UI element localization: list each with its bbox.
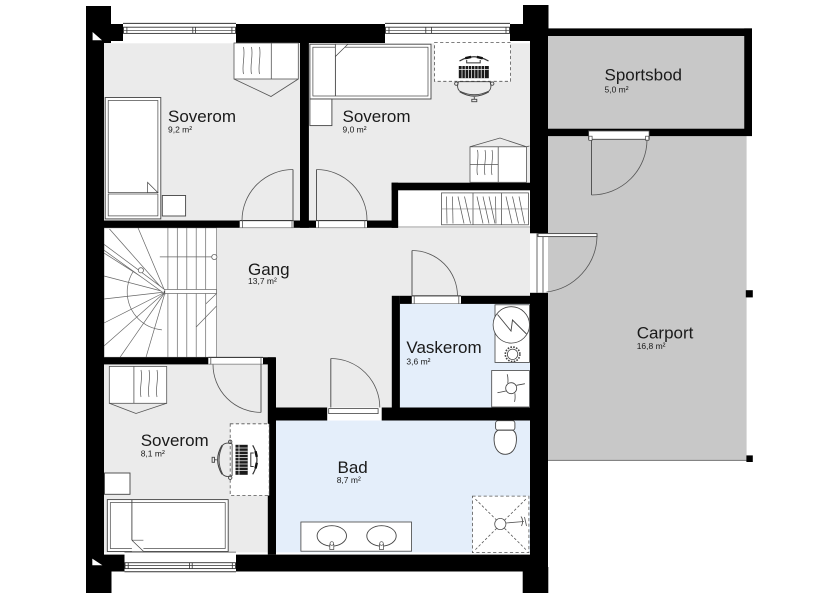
svg-text:8,1 m²: 8,1 m²: [141, 449, 165, 459]
svg-text:9,0 m²: 9,0 m²: [343, 124, 367, 134]
svg-text:Sportsbod: Sportsbod: [605, 66, 683, 85]
svg-text:9,2 m²: 9,2 m²: [168, 124, 192, 134]
svg-text:Soverom: Soverom: [343, 107, 411, 126]
svg-text:Soverom: Soverom: [141, 431, 209, 450]
svg-text:13,7 m²: 13,7 m²: [248, 276, 277, 286]
svg-text:3,6 m²: 3,6 m²: [406, 357, 430, 367]
svg-text:16,8 m²: 16,8 m²: [637, 341, 666, 351]
svg-text:Carport: Carport: [637, 323, 694, 342]
svg-text:8,7 m²: 8,7 m²: [337, 475, 361, 485]
svg-text:Soverom: Soverom: [168, 107, 236, 126]
svg-text:5,0 m²: 5,0 m²: [605, 84, 629, 94]
svg-text:Vaskerom: Vaskerom: [406, 338, 481, 357]
